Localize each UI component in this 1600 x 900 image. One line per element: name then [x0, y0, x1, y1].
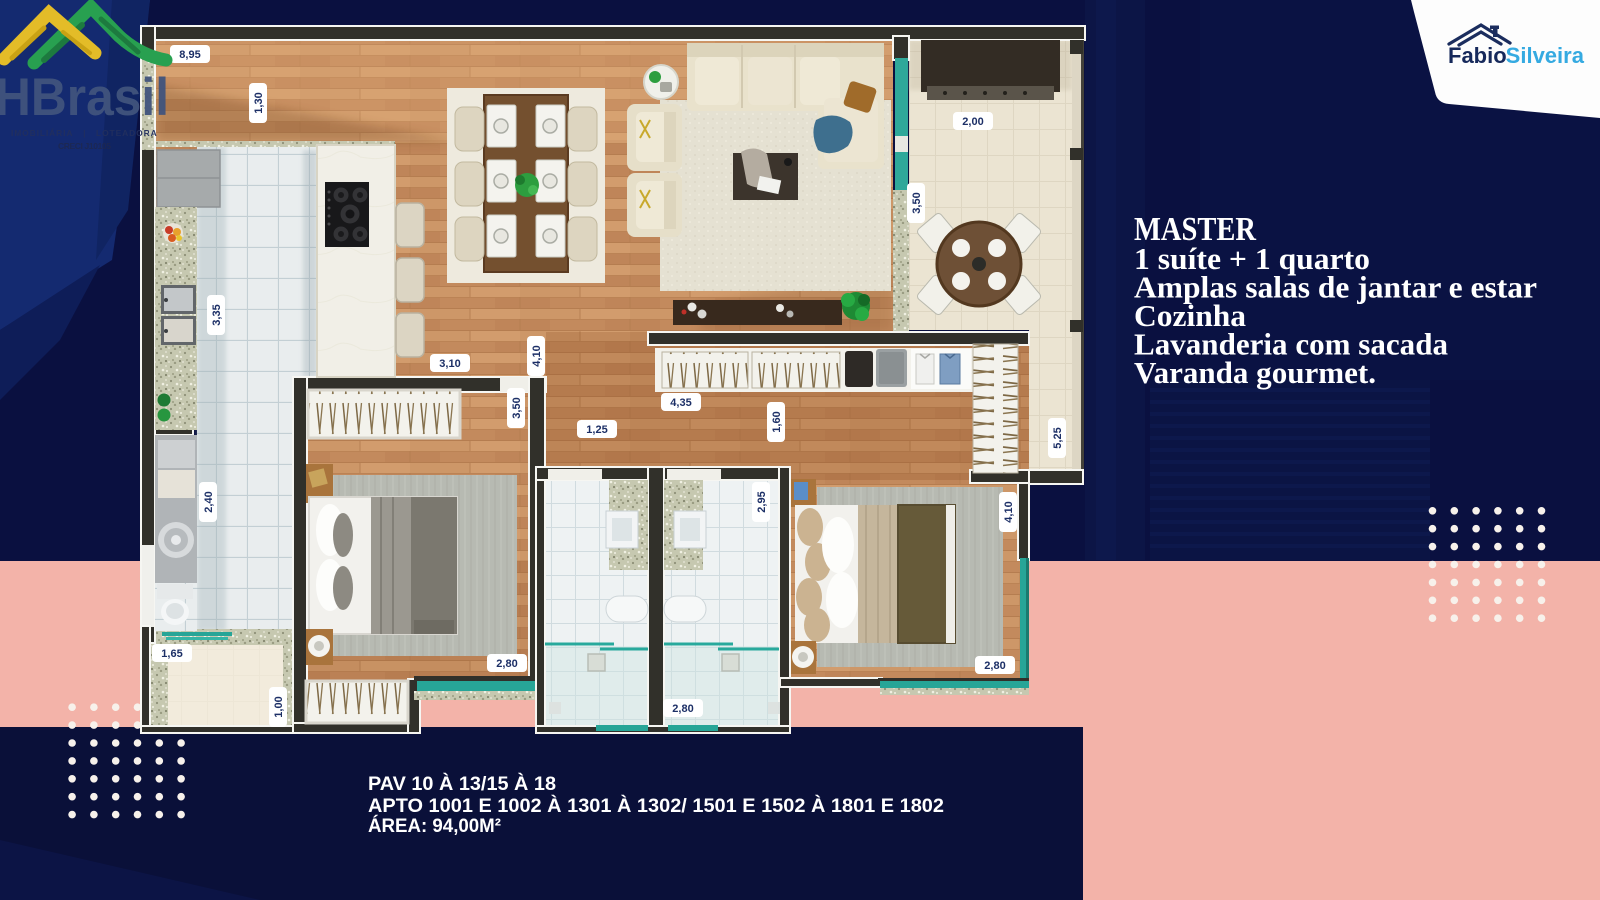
svg-text:1,00: 1,00	[273, 696, 285, 717]
svg-text:2,95: 2,95	[756, 491, 768, 512]
svg-text:3,35: 3,35	[211, 304, 223, 325]
svg-text:ÁREA: 94,00M²: ÁREA: 94,00M²	[368, 815, 501, 837]
svg-text:CRECI J10105: CRECI J10105	[58, 141, 112, 151]
svg-text:4,35: 4,35	[670, 397, 691, 409]
svg-text:Varanda gourmet.: Varanda gourmet.	[1134, 355, 1376, 390]
svg-text:3,50: 3,50	[911, 192, 923, 213]
svg-text:1,25: 1,25	[586, 424, 607, 436]
svg-text:2,80: 2,80	[496, 658, 517, 670]
svg-text:4,10: 4,10	[531, 345, 543, 366]
svg-text:1,60: 1,60	[771, 411, 783, 432]
svg-text:PAV 10 À 13/15 À 18: PAV 10 À 13/15 À 18	[368, 773, 556, 795]
svg-text:FabioSilveira: FabioSilveira	[1448, 43, 1585, 68]
svg-text:2,00: 2,00	[962, 116, 983, 128]
svg-text:APTO 1001 E 1002 À 1301 À 1302: APTO 1001 E 1002 À 1301 À 1302/ 1501 E 1…	[368, 795, 944, 817]
svg-text:4,10: 4,10	[1003, 501, 1015, 522]
svg-text:2,40: 2,40	[203, 491, 215, 512]
svg-text:HBrasil: HBrasil	[0, 68, 169, 127]
svg-text:2,80: 2,80	[672, 703, 693, 715]
svg-text:5,25: 5,25	[1052, 427, 1064, 448]
svg-text:IMOBILIÁRIA | LOTEADORA: IMOBILIÁRIA | LOTEADORA	[11, 128, 158, 138]
svg-text:3,50: 3,50	[511, 397, 523, 418]
svg-text:8,95: 8,95	[179, 49, 200, 61]
svg-text:3,10: 3,10	[439, 358, 460, 370]
svg-text:2,80: 2,80	[984, 660, 1005, 672]
svg-text:1,65: 1,65	[161, 648, 182, 660]
svg-text:1,30: 1,30	[253, 92, 265, 113]
